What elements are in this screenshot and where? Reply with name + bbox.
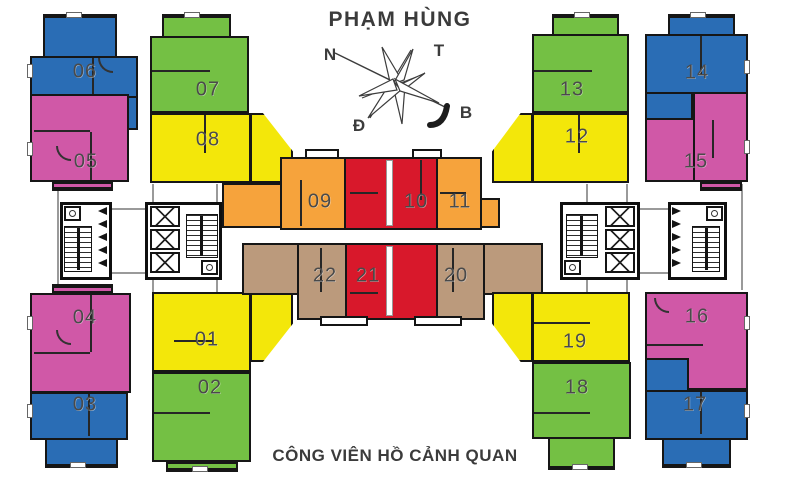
unit-14-area [645, 92, 693, 120]
floor-plan-canvas: 01 02 03 04 05 06 07 08 09 10 11 12 13 1… [0, 0, 800, 481]
balcony [305, 149, 339, 159]
unit-09-area [222, 183, 284, 228]
sink-icon [711, 210, 718, 217]
sink-icon [569, 264, 576, 271]
unit-11-area [480, 198, 500, 228]
unit-07-label: 07 [196, 79, 220, 102]
louver-icon [672, 246, 681, 254]
connector-line [216, 184, 218, 202]
connector-line [112, 208, 145, 210]
interior-wall [34, 130, 90, 132]
unit-15-area [700, 182, 742, 191]
unit-18-area [532, 362, 631, 439]
connector-line [152, 280, 154, 292]
wc-fixture [564, 260, 581, 275]
window-gap [744, 404, 750, 418]
elevator-shaft [150, 229, 180, 250]
wc-fixture [706, 206, 723, 221]
connector-line [640, 272, 668, 274]
window-gap [744, 316, 750, 330]
interior-wall [534, 322, 590, 324]
unit-11-label: 11 [449, 191, 472, 214]
interior-wall [712, 120, 714, 158]
elevator-shaft [605, 229, 635, 250]
unit-16-label: 16 [685, 306, 709, 329]
compass-label-sw: Đ [353, 116, 365, 134]
window-gap [66, 12, 82, 18]
window-gap [184, 12, 200, 18]
elevator-shaft [150, 206, 180, 227]
connector-line [216, 280, 218, 292]
interior-wall [154, 412, 210, 414]
interior-wall [647, 344, 703, 346]
unit-19-label: 19 [563, 331, 587, 354]
louver-icon [672, 220, 681, 228]
window-gap [27, 404, 33, 418]
stair-rail [77, 228, 80, 270]
window-gap [574, 12, 590, 18]
balcony [414, 316, 462, 326]
window-gap [690, 12, 706, 18]
unit-22-area [242, 243, 299, 295]
stair-rail [200, 216, 203, 256]
compass-label-se: B [460, 103, 472, 122]
elevator-shaft [605, 206, 635, 227]
unit-17-label: 17 [683, 394, 707, 417]
unit-22-label: 22 [313, 265, 337, 288]
balcony [320, 316, 368, 326]
unit-12-label: 12 [565, 126, 589, 149]
connector-line [626, 280, 628, 292]
park-label: CÔNG VIÊN HỒ CẢNH QUAN [235, 446, 555, 466]
sink-icon [69, 210, 76, 217]
unit-04-label: 04 [73, 307, 97, 330]
louver-icon [672, 259, 681, 267]
unit-14-label: 14 [685, 62, 709, 85]
connector-line [586, 184, 588, 202]
interior-wall [350, 292, 378, 294]
stair-rail [580, 216, 583, 256]
unit-20-area [483, 243, 543, 295]
corridor-gap [386, 246, 393, 316]
connector-line [112, 272, 145, 274]
interior-wall [534, 70, 592, 72]
compass-label-nw: N [324, 45, 336, 64]
unit-05-label: 05 [74, 151, 98, 174]
interior-wall [34, 352, 90, 354]
louver-icon [672, 207, 681, 215]
window-gap [686, 462, 702, 468]
elevator-shaft [605, 252, 635, 273]
interior-wall [350, 192, 378, 194]
unit-12-area [492, 113, 533, 183]
interior-wall [300, 180, 302, 226]
window-gap [744, 60, 750, 74]
window-gap [572, 464, 588, 470]
window-gap [27, 142, 33, 156]
unit-05-area [52, 182, 113, 191]
unit-01-area [250, 292, 293, 362]
unit-15-label: 15 [684, 151, 708, 174]
north-arrow-icon [430, 106, 447, 125]
elevator-shaft [150, 252, 180, 273]
compass-label-ne: T [434, 41, 445, 60]
unit-21-label: 21 [356, 265, 380, 288]
unit-20-label: 20 [444, 265, 468, 288]
unit-08-label: 08 [196, 129, 220, 152]
balcony [412, 149, 442, 159]
window-gap [27, 64, 33, 78]
window-gap [27, 316, 33, 330]
wc-fixture [64, 206, 81, 221]
stair-rail [705, 228, 708, 270]
unit-06-area [43, 14, 117, 60]
window-gap [192, 466, 208, 472]
unit-02-label: 02 [198, 377, 222, 400]
unit-04-area [52, 284, 113, 293]
louver-icon [98, 233, 107, 241]
connector-line [626, 184, 628, 202]
window-gap [70, 462, 86, 468]
unit-03-label: 03 [73, 394, 97, 417]
vent-louvers [98, 207, 107, 267]
vent-louvers [672, 207, 681, 267]
unit-10-label: 10 [404, 191, 428, 214]
connector-line [741, 184, 743, 290]
corridor-gap [386, 160, 393, 226]
connector-line [152, 184, 154, 202]
sink-icon [206, 264, 213, 271]
window-gap [744, 140, 750, 154]
louver-icon [98, 207, 107, 215]
connector-line [640, 208, 668, 210]
unit-18-label: 18 [565, 377, 589, 400]
unit-01-label: 01 [195, 329, 219, 352]
louver-icon [672, 233, 681, 241]
wc-fixture [201, 260, 218, 275]
connector-line [586, 280, 588, 292]
louver-icon [98, 259, 107, 267]
interior-wall [152, 70, 210, 72]
street-name-label: PHẠM HÙNG [290, 8, 510, 32]
louver-icon [98, 220, 107, 228]
unit-19-area [492, 292, 533, 362]
louver-icon [98, 246, 107, 254]
connector-line [57, 184, 59, 292]
unit-09-label: 09 [308, 191, 332, 214]
unit-17-area [645, 358, 689, 392]
interior-wall [534, 412, 590, 414]
compass-rose: N T Đ B [318, 34, 488, 134]
unit-13-label: 13 [560, 79, 584, 102]
unit-06-label: 06 [73, 61, 97, 84]
